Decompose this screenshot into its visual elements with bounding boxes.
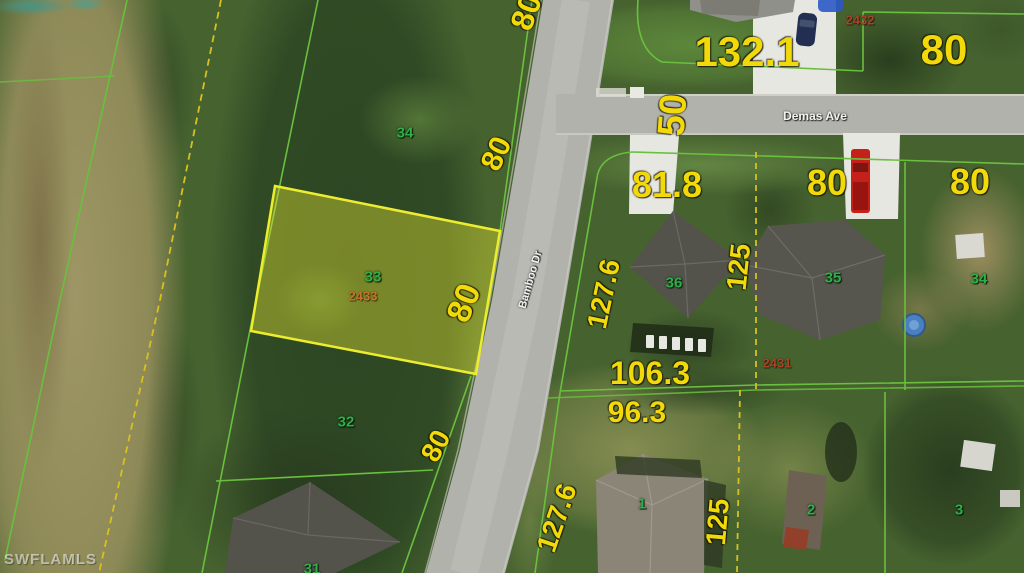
dimension-label-50: 50 (653, 93, 694, 138)
dimension-label-80-35: 80 (807, 165, 847, 201)
dimension-label-81-8: 81.8 (632, 167, 702, 203)
house-35-roof (745, 220, 885, 340)
parcel-number-32: 32 (338, 415, 355, 430)
dimension-label-80-34e: 80 (950, 164, 990, 200)
curb-apron (596, 88, 626, 97)
parcel-number-31: 31 (304, 562, 321, 573)
wetland-cross-segment (0, 76, 115, 82)
white-shed-3 (960, 440, 995, 471)
dimension-label-96-3: 96.3 (608, 398, 666, 428)
dimension-label-125-36: 125 (723, 242, 756, 291)
white-shed-3b (1000, 490, 1020, 507)
parcel-number-35: 35 (825, 271, 842, 286)
crosswalk-bar (630, 87, 644, 98)
street-label-demas-ave: Demas Ave (783, 110, 847, 122)
mls-watermark: SWFLAMLS (4, 551, 97, 568)
blue-boat (818, 0, 843, 12)
parcel-id-2433: 2433 (349, 290, 378, 303)
parcel-number-36: 36 (666, 276, 683, 291)
parcel-number-34-east: 34 (971, 272, 988, 287)
dimension-label-80-2432: 80 (921, 29, 968, 71)
parcel-number-33: 33 (365, 270, 382, 285)
parcel-id-2431: 2431 (763, 357, 792, 370)
dimension-label-125-1: 125 (702, 498, 734, 547)
house-31-roof (225, 482, 400, 573)
parcel-number-34-west: 34 (397, 126, 414, 141)
parcel-number-2: 2 (807, 503, 815, 518)
wetland-west-line (5, 0, 127, 560)
dimension-label-132-1: 132.1 (694, 31, 799, 73)
wetland-dashed-line (99, 0, 221, 573)
white-shed-34e (955, 233, 985, 259)
parcel-number-3: 3 (955, 503, 963, 518)
lot1-2-dashed-divider (737, 390, 740, 573)
house-2-red-section (783, 527, 809, 550)
aerial-parcel-map: 80 132.1 80 50 80 81.8 80 80 127.6 125 8… (0, 0, 1024, 573)
parcel-number-1: 1 (638, 497, 646, 512)
house-2-yard-structure (825, 422, 857, 482)
lot32-31-divider (216, 470, 433, 481)
parcel-id-2432: 2432 (846, 14, 875, 27)
kiddie-pool (903, 314, 925, 336)
map-overlay (0, 0, 1024, 573)
house-2432-roof-dark (700, 0, 760, 16)
dimension-label-106-3: 106.3 (610, 357, 690, 389)
